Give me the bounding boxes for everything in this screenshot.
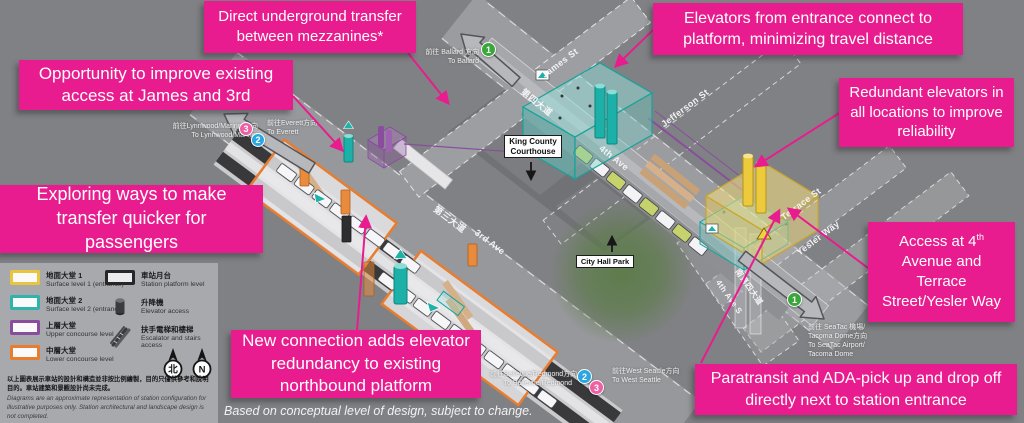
line-1-badge-ballard: 1 bbox=[481, 42, 496, 57]
dir-to-west-seattle: 前往West Seattle方向To West Seattle bbox=[612, 367, 680, 385]
design-footnote: Based on conceptual level of design, sub… bbox=[224, 404, 533, 418]
dir-to-bellevue: 前往Bellevue/Redmond方向To Bellevue/Redmond bbox=[490, 370, 572, 388]
dir-to-everett: 前往Everett方向To Everett bbox=[267, 119, 317, 137]
platform-swatch bbox=[105, 270, 135, 285]
legend-lower-concourse: 中層大堂Lower concourse level bbox=[10, 345, 114, 363]
surface1-swatch bbox=[10, 270, 40, 285]
upper-concourse-swatch bbox=[10, 320, 40, 335]
surface2-swatch bbox=[10, 295, 40, 310]
legend-escalator: 扶手電梯和樓梯Escalator and stairs access bbox=[105, 324, 218, 349]
callout-new-connection: New connection adds elevator redundancy … bbox=[231, 330, 481, 398]
dir-to-seatac: 前往 SeaTac 機場/Tacoma Dome方向 To SeaTac Air… bbox=[808, 323, 867, 359]
line-3-badge-westseattle: 3 bbox=[589, 380, 604, 395]
line-1-badge-seatac: 1 bbox=[787, 292, 802, 307]
line-2-badge-lynnwood: 2 bbox=[251, 133, 265, 147]
svg-text:N: N bbox=[199, 365, 206, 376]
callout-access-4th: Access at 4th Avenue and Terrace Street/… bbox=[868, 222, 1015, 322]
upper-concourse-structure bbox=[368, 126, 406, 168]
label-city-hall-park: City Hall Park bbox=[576, 255, 634, 268]
callout-direct-transfer: Direct underground transfer between mezz… bbox=[204, 1, 416, 53]
legend-disclaimer-en: Diagrams are an approximate representati… bbox=[7, 395, 211, 421]
callout-elevators-entrance: Elevators from entrance connect to platf… bbox=[653, 3, 963, 55]
station-diagram-page: James St Jefferson St Terrace St Yesler … bbox=[0, 0, 1024, 423]
elevator-icon bbox=[105, 297, 135, 317]
legend-platform: 車站月台Station platform level bbox=[105, 270, 204, 288]
legend-disclaimer-zh: 以上圖表展示車站的設計和構造並非按比例繪製，目的只僅供參考和說明目的。車站建築和… bbox=[7, 375, 211, 394]
svg-text:北: 北 bbox=[168, 364, 178, 376]
legend-panel: 地面大堂 1Surface level 1 (entrance) 地面大堂 2S… bbox=[0, 263, 218, 423]
legend-elevator: 升降機Elevator access bbox=[105, 297, 189, 317]
lower-concourse-swatch bbox=[10, 345, 40, 360]
callout-exploring-transfer: Exploring ways to make transfer quicker … bbox=[0, 185, 263, 253]
escalator-icon bbox=[105, 324, 135, 348]
line-3-badge-lynnwood: 3 bbox=[239, 122, 253, 136]
label-king-county-courthouse: King County Courthouse bbox=[504, 135, 562, 158]
callout-improve-access: Opportunity to improve existing access a… bbox=[19, 60, 293, 110]
callout-paratransit: Paratransit and ADA-pick up and drop off… bbox=[695, 364, 1017, 415]
legend-upper-concourse: 上層大堂Upper concourse level bbox=[10, 320, 114, 338]
callout-redundant-elevators: Redundant elevators in all locations to … bbox=[839, 78, 1014, 147]
